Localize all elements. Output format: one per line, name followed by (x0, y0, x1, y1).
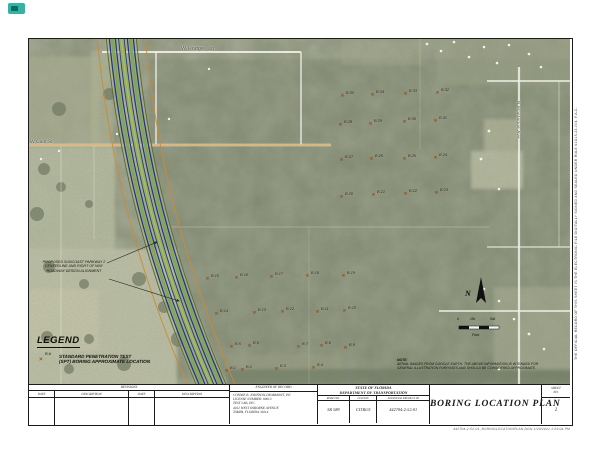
spt-marker-icon: × (312, 366, 315, 371)
boring-label: B-1 (230, 366, 236, 370)
spt-marker-icon: × (436, 91, 439, 96)
spt-marker-icon: × (230, 345, 233, 350)
boring-label: B-14 (220, 309, 228, 313)
boring-label: B-13 (258, 308, 266, 312)
spt-marker-icon: × (320, 344, 323, 349)
spt-marker-icon: × (241, 368, 244, 373)
page-corner-stamp (8, 3, 25, 14)
agency-block: STATE OF FLORIDA DEPARTMENT OF TRANSPORT… (317, 385, 429, 424)
spt-marker-icon: × (371, 93, 374, 98)
boring-label: B-25 (408, 154, 416, 158)
spt-marker-icon: × (206, 277, 209, 282)
spt-marker-icon: × (370, 157, 373, 162)
page: { "map": { "road_labels": { "top": "W Ho… (0, 0, 600, 464)
boring-label: B-30 (408, 117, 416, 121)
aerial-map: W Hodges Ln. W Cain St N Montague Ave PR… (29, 39, 570, 384)
spt-marker-icon: × (253, 311, 256, 316)
spt-marker-icon: × (225, 369, 228, 374)
boring-label: B-32 (441, 88, 449, 92)
digital-signature-note: THE OFFICIAL RECORD OF THIS SHEET IS THE… (574, 40, 578, 426)
spt-marker-icon: × (235, 276, 238, 281)
field-value-road-no: SR 589 (318, 401, 350, 423)
engineer-of-record: ENGINEER OF RECORD CONNIE B. JOHNSON-DEA… (229, 385, 317, 424)
boring-label: B-4 (317, 363, 323, 367)
sheet-title: BORING LOCATION PLAN (429, 385, 541, 424)
boring-label: B-20 (345, 192, 353, 196)
spt-marker-icon: × (281, 310, 284, 315)
sheet-no-value: 1 (542, 398, 570, 422)
spt-marker-icon: × (270, 275, 273, 280)
spt-marker-icon: × (403, 157, 406, 162)
sheet-no-label: NO. (542, 391, 570, 395)
boring-label: B-6 (253, 341, 259, 345)
boring-label: B-19 (347, 271, 355, 275)
boring-label: B-24 (439, 153, 447, 157)
spt-marker-icon: × (343, 309, 346, 314)
spt-marker-icon: × (306, 274, 309, 279)
boring-label: B-18 (311, 271, 319, 275)
spt-marker-icon: × (275, 367, 278, 372)
boring-label: B-27 (345, 155, 353, 159)
boring-label: B-5 (235, 342, 241, 346)
revisions-col-description: DESCRIPTION (155, 391, 229, 397)
spt-marker-icon: × (339, 123, 342, 128)
spt-marker-icon: × (342, 274, 345, 279)
boring-label: B-11 (321, 307, 329, 311)
field-value-county: CITRUS (350, 401, 378, 423)
boring-label: B-15 (211, 274, 219, 278)
spt-marker-icon: × (372, 193, 375, 198)
boring-label: B-28 (344, 120, 352, 124)
boring-label: B-16 (240, 273, 248, 277)
spt-marker-icon: × (344, 346, 347, 351)
spt-marker-icon: × (404, 92, 407, 97)
spt-marker-icon: × (215, 312, 218, 317)
boring-label: B-3 (280, 364, 286, 368)
boring-label: B-17 (275, 272, 283, 276)
boring-label: B-29 (374, 119, 382, 123)
spt-marker-icon: × (341, 94, 344, 99)
boring-label: B-22 (409, 189, 417, 193)
revisions-col-description: DESCRIPTION (55, 391, 129, 397)
boring-layer: ×B-1×B-2×B-3×B-4×B-5×B-6×B-7×B-8×B-9×B-1… (29, 39, 570, 384)
spt-marker-icon: × (340, 195, 343, 200)
boring-label: B-21 (377, 190, 385, 194)
plot-info: 442704-2-52-01_BORINGLOCATIONPLAN.DGN 1/… (453, 427, 570, 431)
boring-label: B-10 (348, 306, 356, 310)
plan-sheet: W Hodges Ln. W Cain St N Montague Ave PR… (28, 38, 573, 426)
boring-label: B-23 (440, 188, 448, 192)
revisions-table: REVISIONS DATE DESCRIPTION DATE DESCRIPT… (29, 385, 229, 424)
title-block: REVISIONS DATE DESCRIPTION DATE DESCRIPT… (29, 384, 570, 424)
revisions-col-date: DATE (29, 391, 55, 397)
spt-marker-icon: × (435, 191, 438, 196)
spt-marker-icon: × (340, 158, 343, 163)
boring-label: B-33 (409, 89, 417, 93)
boring-label: B-8 (325, 341, 331, 345)
boring-label: B-26 (375, 154, 383, 158)
boring-label: B-2 (246, 365, 252, 369)
boring-label: B-35 (346, 91, 354, 95)
boring-label: B-7 (302, 342, 308, 346)
spt-marker-icon: × (248, 344, 251, 349)
spt-marker-icon: × (316, 310, 319, 315)
spt-marker-icon: × (403, 120, 406, 125)
spt-marker-icon: × (404, 192, 407, 197)
boring-label: B-12 (286, 307, 294, 311)
spt-marker-icon: × (434, 156, 437, 161)
revisions-empty-rows (29, 398, 229, 425)
sheet-number-block: SHEET NO. 1 (541, 385, 570, 424)
spt-marker-icon: × (369, 122, 372, 127)
engineer-line: TAMPA, FLORIDA 33614 (233, 410, 317, 414)
field-value-fpid: 442704-2-52-01 (377, 401, 429, 423)
boring-label: B-34 (376, 90, 384, 94)
spt-marker-icon: × (297, 345, 300, 350)
boring-label: B-9 (349, 343, 355, 347)
boring-label: B-31 (439, 116, 447, 120)
spt-marker-icon: × (434, 119, 437, 124)
revisions-col-date: DATE (129, 391, 155, 397)
